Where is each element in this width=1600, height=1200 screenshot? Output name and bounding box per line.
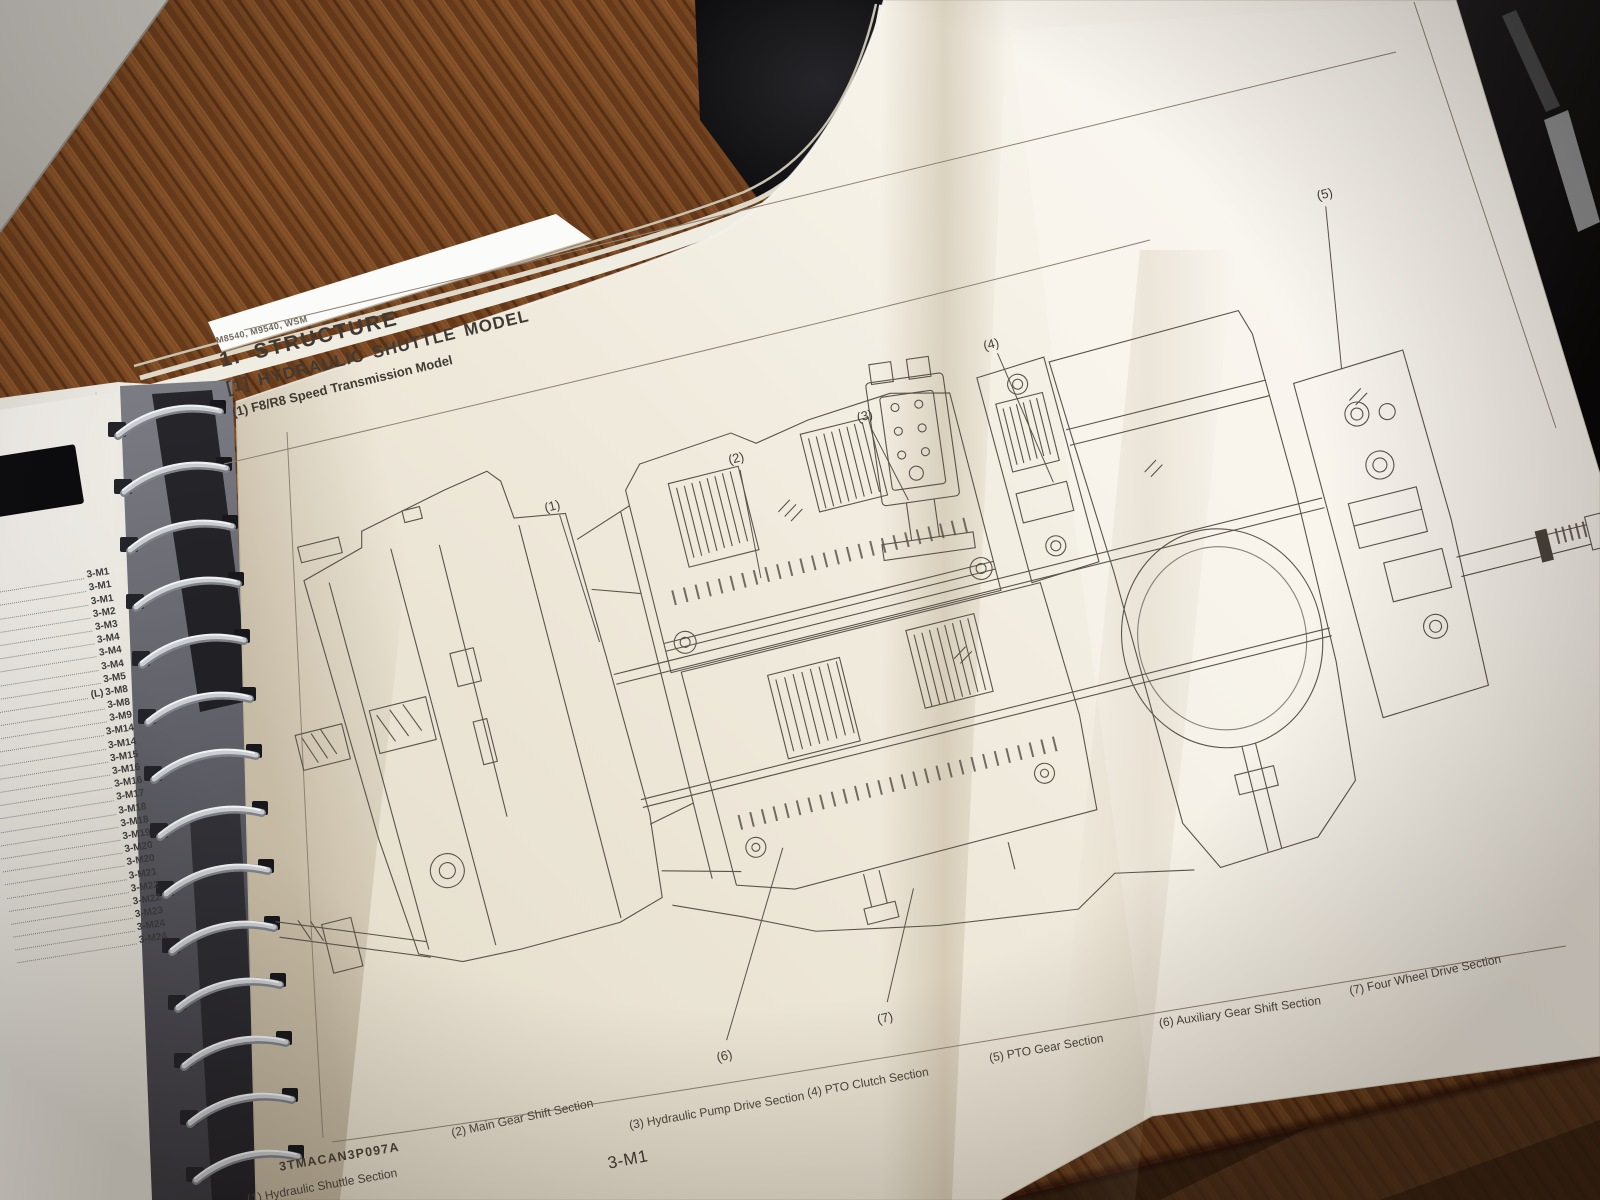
- toc-model-prefix: (L): [90, 688, 104, 700]
- photo-of-open-service-manual: (1) (2) (3) (4) (5) (6) (7) M8540, M9540…: [0, 0, 1600, 1200]
- scene-background: (1) (2) (3) (4) (5) (6) (7): [0, 0, 1600, 1200]
